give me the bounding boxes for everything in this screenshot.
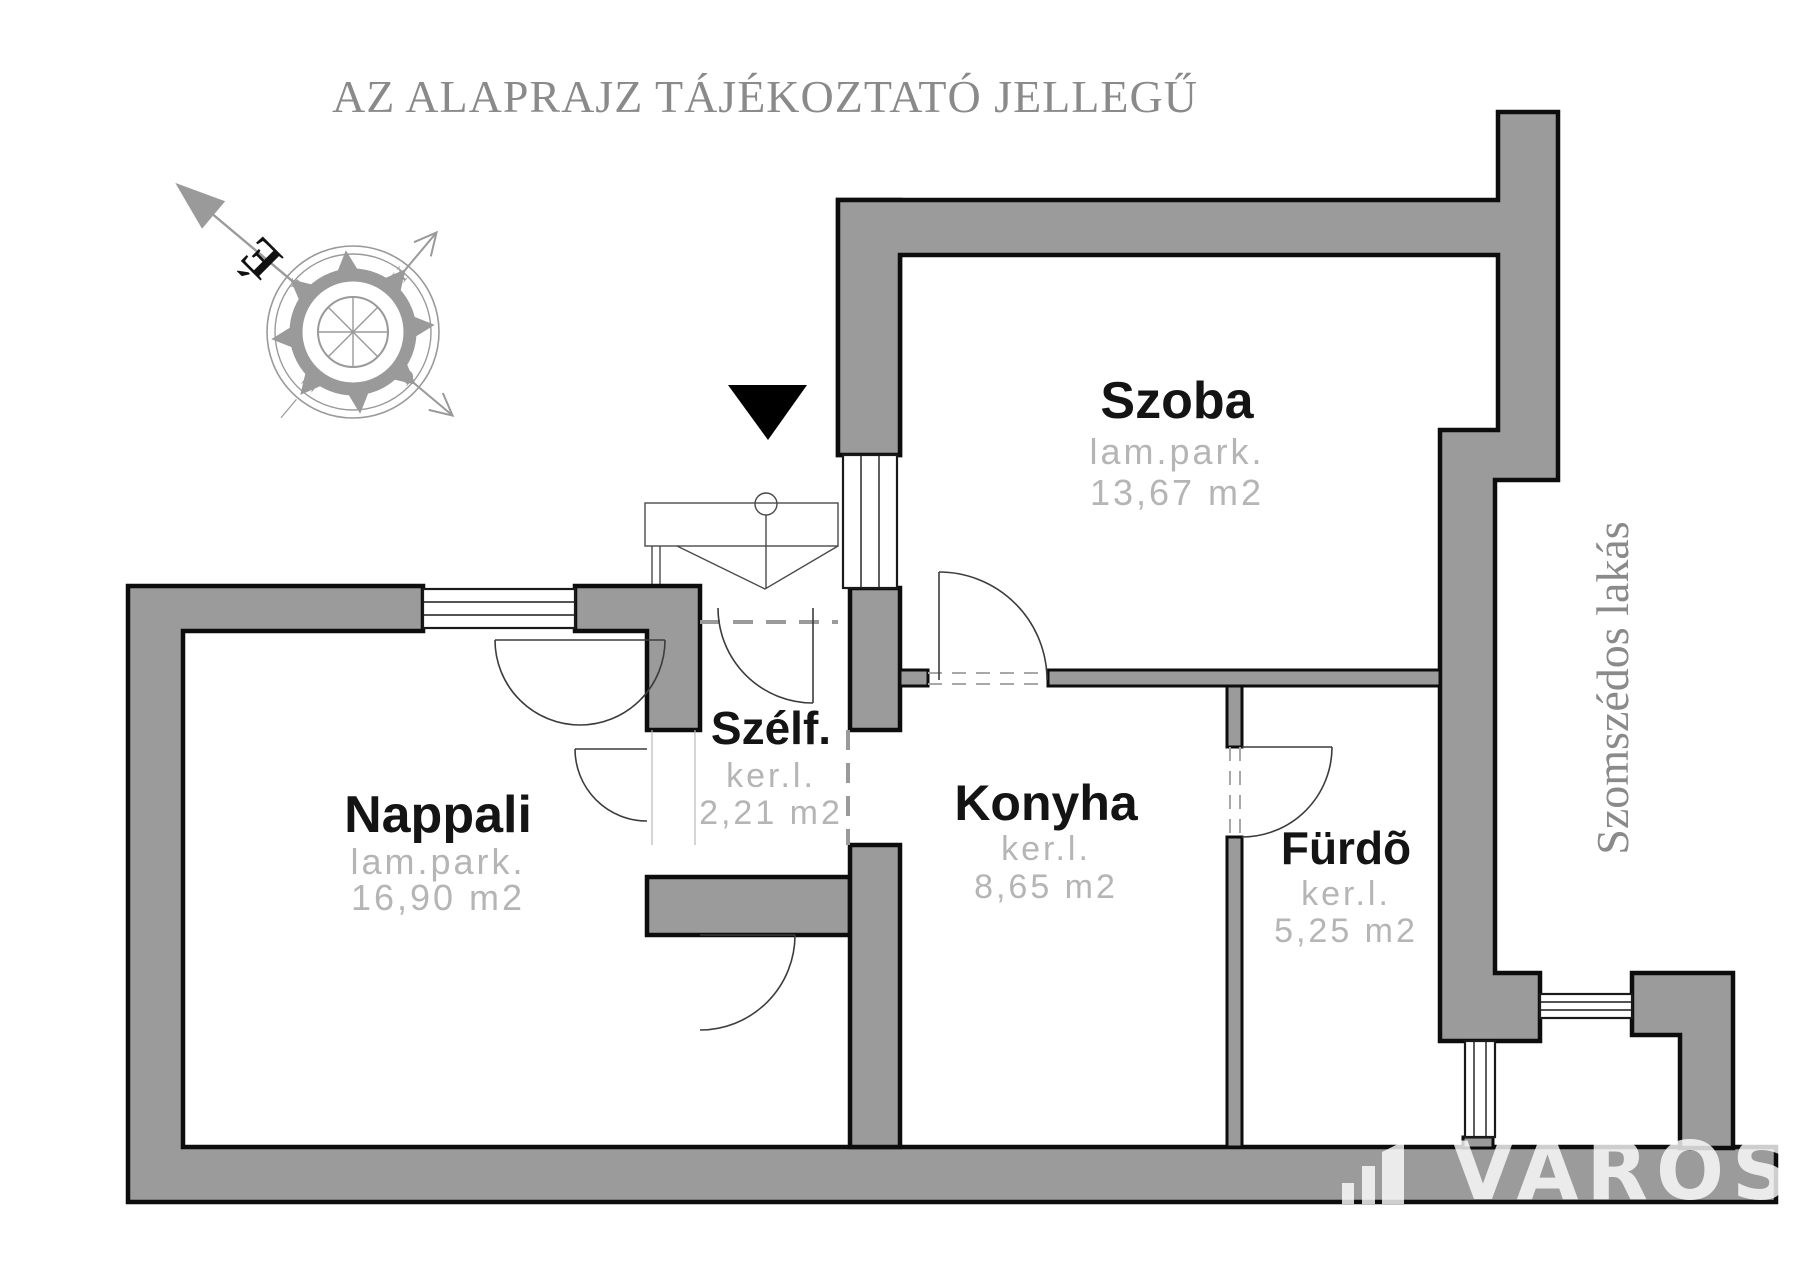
window-bottom-right-horizontal: [1540, 994, 1632, 1018]
room-area-szoba: 13,67 m2: [1090, 472, 1264, 513]
wall-bottom-right-block: [1632, 973, 1733, 1148]
window-szoba-left: [843, 455, 897, 588]
room-label-szelfogo: Szélf. ker.l. 2,21 m2: [699, 702, 843, 832]
floor-plan-drawing: AZ ALAPRAJZ TÁJÉKOZTATÓ JELLEGŰ: [0, 0, 1811, 1280]
wall-konyha-furdo-upper: [1227, 686, 1242, 747]
window-nappali-top: [423, 589, 575, 628]
wall-konyha-left-upper: [850, 588, 900, 730]
room-floor-szelfogo: ker.l.: [726, 757, 816, 795]
wall-szelfogo-bottom: [647, 877, 850, 935]
wall-top-szelfogo-stub: [575, 586, 700, 730]
wall-top-right-exterior: [838, 112, 1558, 1041]
door-arc-below-szelfogo: [700, 935, 795, 1030]
door-entrance: [700, 608, 838, 703]
watermark-brand-text: VAROSI: [1452, 1125, 1811, 1218]
wall-konyha-furdo-lower: [1227, 837, 1242, 1147]
logo-building-bar-mid-icon: [1362, 1166, 1375, 1204]
window-bottom-right-vertical: [1465, 1041, 1495, 1137]
room-area-nappali: 16,90 m2: [351, 877, 525, 918]
door-szoba-konyha: [928, 572, 1048, 684]
room-area-furdo: 5,25 m2: [1274, 912, 1418, 950]
compass-letter-e: NY: [376, 262, 414, 301]
logo-building-tower-icon: [1382, 1141, 1404, 1204]
room-floor-szoba: lam.park.: [1089, 431, 1264, 472]
wall-szoba-bottom-stub: [900, 670, 928, 686]
neighbor-apartment-label: Szomszédos lakás: [1587, 521, 1638, 854]
room-floor-nappali: lam.park.: [350, 841, 525, 882]
entrance-canopy: [645, 493, 838, 589]
room-label-nappali: Nappali lam.park. 16,90 m2: [344, 786, 532, 918]
room-label-szoba: Szoba lam.park. 13,67 m2: [1089, 372, 1264, 513]
room-name-konyha: Konyha: [954, 775, 1139, 831]
wall-konyha-left-lower: [850, 845, 900, 1147]
logo-building-bar-small-icon: [1342, 1183, 1354, 1204]
compass-spokes: [318, 297, 388, 367]
north-arrow-head: [164, 169, 225, 229]
room-area-szelfogo: 2,21 m2: [699, 794, 843, 832]
room-name-szoba: Szoba: [1100, 372, 1254, 430]
room-name-furdo: Fürdõ: [1281, 822, 1411, 874]
room-floor-furdo: ker.l.: [1301, 875, 1391, 913]
room-label-konyha: Konyha ker.l. 8,65 m2: [954, 775, 1139, 906]
door-arc-under-top-wall: [495, 640, 665, 725]
wall-szoba-bottom: [1048, 670, 1440, 686]
room-floor-konyha: ker.l.: [1001, 830, 1091, 868]
room-name-nappali: Nappali: [344, 786, 532, 844]
room-area-konyha: 8,65 m2: [974, 868, 1118, 906]
entrance-direction-marker-icon: [728, 385, 807, 440]
plan-disclaimer-title: AZ ALAPRAJZ TÁJÉKOZTATÓ JELLEGŰ: [332, 71, 1198, 122]
door-nappali: [575, 730, 695, 845]
room-label-furdo: Fürdõ ker.l. 5,25 m2: [1274, 822, 1418, 950]
floor-plan-page: AZ ALAPRAJZ TÁJÉKOZTATÓ JELLEGŰ: [0, 0, 1811, 1280]
room-name-szelfogo: Szélf.: [711, 702, 831, 754]
compass-rose: É É NY D K: [103, 83, 536, 501]
